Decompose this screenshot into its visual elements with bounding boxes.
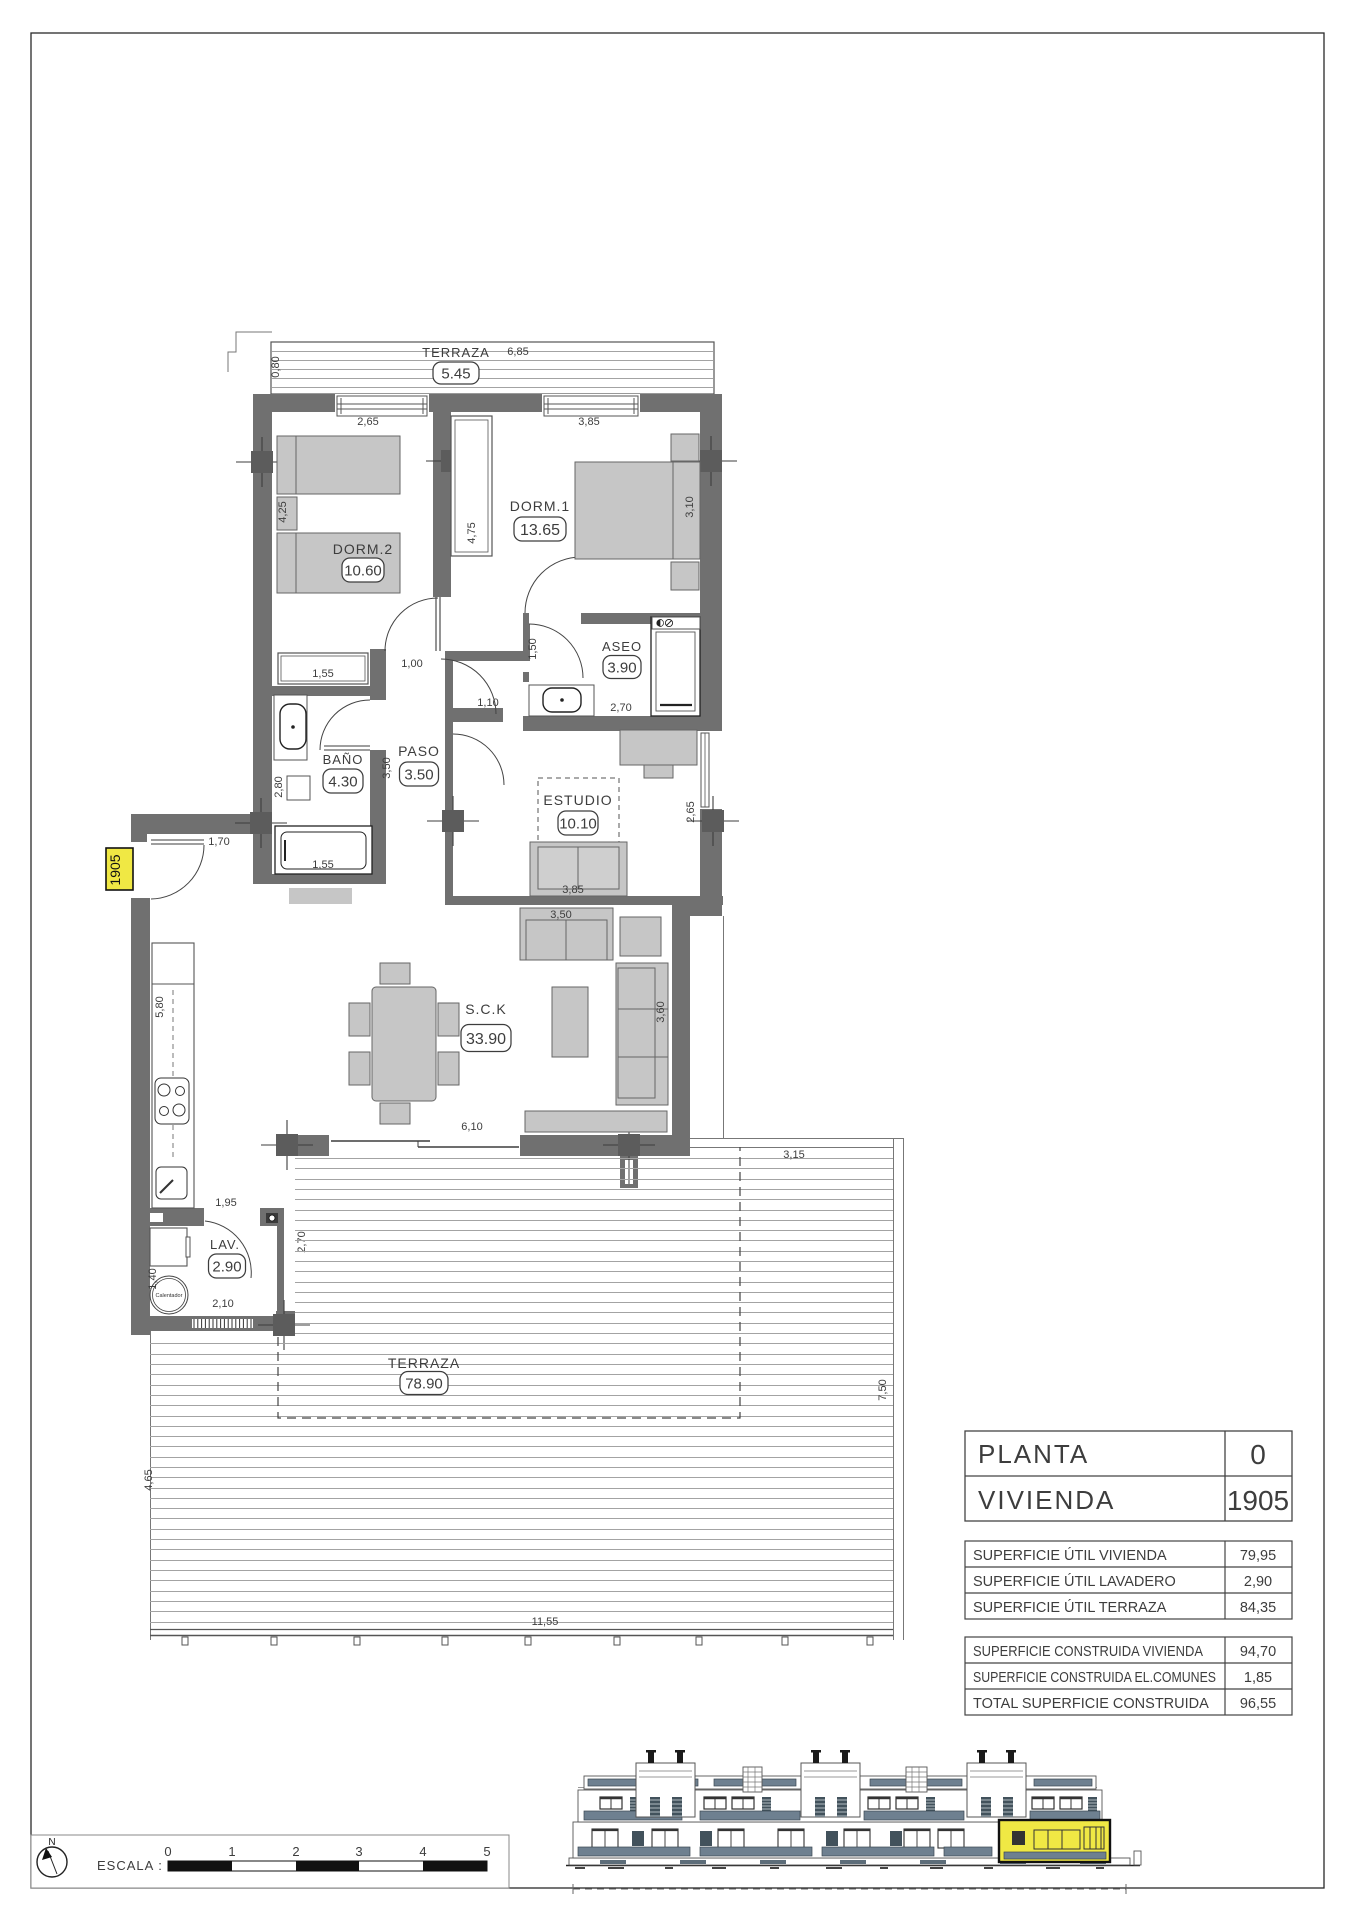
svg-text:1,55: 1,55 (312, 668, 333, 680)
svg-text:DORM.2: DORM.2 (333, 541, 393, 557)
svg-text:3,15: 3,15 (783, 1149, 804, 1161)
svg-text:1,50: 1,50 (527, 638, 539, 659)
svg-text:10.10: 10.10 (559, 815, 597, 832)
svg-text:1: 1 (228, 1844, 235, 1859)
svg-text:3,50: 3,50 (550, 909, 571, 921)
svg-text:1,85: 1,85 (1244, 1670, 1272, 1686)
svg-text:2.90: 2.90 (212, 1258, 241, 1275)
svg-text:4,75: 4,75 (466, 522, 478, 543)
svg-text:33.90: 33.90 (466, 1031, 506, 1048)
svg-text:0: 0 (164, 1844, 171, 1859)
svg-text:TOTAL SUPERFICIE CONSTRUIDA: TOTAL SUPERFICIE CONSTRUIDA (973, 1696, 1209, 1712)
svg-text:2,10: 2,10 (212, 1298, 233, 1310)
svg-text:3.50: 3.50 (404, 766, 433, 783)
svg-text:3,60: 3,60 (655, 1001, 667, 1022)
svg-text:79,95: 79,95 (1240, 1548, 1276, 1564)
svg-text:1,00: 1,00 (401, 658, 422, 670)
svg-text:96,55: 96,55 (1240, 1696, 1276, 1712)
svg-text:ESTUDIO: ESTUDIO (543, 792, 612, 808)
svg-text:4,65: 4,65 (143, 1469, 155, 1490)
svg-text:6,10: 6,10 (461, 1121, 482, 1133)
svg-text:4: 4 (419, 1844, 426, 1859)
svg-text:4.30: 4.30 (328, 773, 357, 790)
svg-text:1,95: 1,95 (215, 1197, 236, 1209)
svg-text:11,55: 11,55 (532, 1616, 559, 1628)
svg-text:84,35: 84,35 (1240, 1600, 1276, 1616)
svg-text:2,65: 2,65 (357, 416, 378, 428)
svg-text:N: N (48, 1837, 55, 1848)
svg-text:3,10: 3,10 (684, 496, 696, 517)
svg-text:0: 0 (1250, 1439, 1266, 1470)
svg-text:ESCALA :: ESCALA : (97, 1858, 163, 1873)
svg-text:5.45: 5.45 (441, 365, 470, 382)
svg-text:PLANTA: PLANTA (978, 1439, 1089, 1469)
svg-text:SUPERFICIE CONSTRUIDA VIVIENDA: SUPERFICIE CONSTRUIDA VIVIENDA (973, 1644, 1203, 1660)
svg-text:3.90: 3.90 (607, 659, 636, 676)
svg-text:SUPERFICIE ÚTIL TERRAZA: SUPERFICIE ÚTIL TERRAZA (973, 1599, 1167, 1616)
svg-text:4,25: 4,25 (277, 501, 289, 522)
svg-text:6,85: 6,85 (507, 346, 528, 358)
svg-text:TERRAZA: TERRAZA (422, 345, 490, 360)
svg-text:78.90: 78.90 (405, 1375, 443, 1392)
svg-text:2,70: 2,70 (296, 1231, 308, 1252)
svg-text:1905: 1905 (107, 854, 123, 885)
svg-text:3: 3 (355, 1844, 362, 1859)
svg-text:7,50: 7,50 (877, 1379, 889, 1400)
svg-text:2,90: 2,90 (1244, 1574, 1272, 1590)
svg-text:TERRAZA: TERRAZA (388, 1355, 460, 1371)
svg-text:13.65: 13.65 (520, 522, 560, 539)
svg-text:2,65: 2,65 (685, 801, 697, 822)
svg-text:1905: 1905 (1227, 1485, 1289, 1516)
svg-text:1,10: 1,10 (477, 697, 498, 709)
svg-text:94,70: 94,70 (1240, 1644, 1276, 1660)
svg-text:3,85: 3,85 (562, 884, 583, 896)
svg-text:PASO: PASO (398, 743, 440, 759)
svg-text:0,80: 0,80 (270, 356, 282, 377)
svg-text:5,80: 5,80 (154, 996, 166, 1017)
svg-text:SUPERFICIE ÚTIL LAVADERO: SUPERFICIE ÚTIL LAVADERO (973, 1573, 1176, 1590)
svg-text:SUPERFICIE ÚTIL VIVIENDA: SUPERFICIE ÚTIL VIVIENDA (973, 1547, 1167, 1564)
svg-text:3,50: 3,50 (381, 757, 393, 778)
svg-text:2,70: 2,70 (610, 702, 631, 714)
svg-text:LAV.: LAV. (210, 1237, 240, 1252)
svg-text:VIVIENDA: VIVIENDA (978, 1485, 1115, 1515)
svg-text:S.C.K: S.C.K (465, 1001, 507, 1017)
svg-text:DORM.1: DORM.1 (510, 498, 570, 514)
svg-text:SUPERFICIE CONSTRUIDA EL.COMUN: SUPERFICIE CONSTRUIDA EL.COMUNES (973, 1670, 1216, 1686)
svg-text:1,55: 1,55 (312, 859, 333, 871)
svg-text:5: 5 (483, 1844, 490, 1859)
svg-text:3,85: 3,85 (578, 416, 599, 428)
svg-text:BAÑO: BAÑO (323, 752, 364, 767)
svg-text:1,40: 1,40 (147, 1268, 159, 1289)
svg-text:1,70: 1,70 (208, 836, 229, 848)
svg-text:2: 2 (292, 1844, 299, 1859)
svg-text:10.60: 10.60 (344, 562, 382, 579)
svg-text:Calentador: Calentador (156, 1293, 183, 1299)
svg-text:2,80: 2,80 (273, 776, 285, 797)
svg-text:ASEO: ASEO (602, 639, 642, 654)
